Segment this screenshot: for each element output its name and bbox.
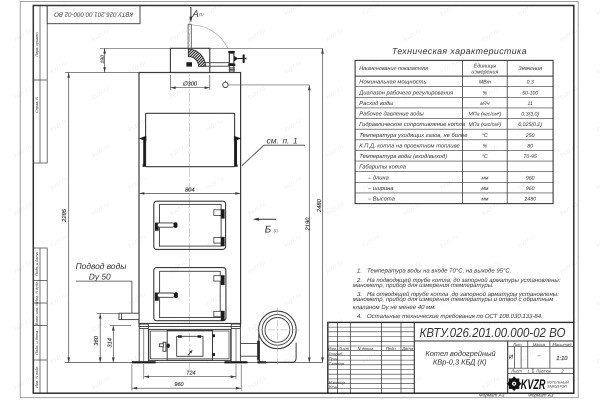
svg-text:мм: мм: [481, 186, 489, 192]
svg-text:– ширина: – ширина: [367, 186, 394, 192]
svg-text:Б: Б: [265, 225, 272, 236]
svg-text:Лит.: Лит.: [512, 342, 523, 347]
svg-text:Расход воды: Расход воды: [359, 100, 394, 107]
svg-text:см. п. 1: см. п. 1: [267, 136, 298, 146]
svg-text:KVZR: KVZR: [521, 376, 546, 392]
svg-text:Перв. примен.: Перв. примен.: [35, 31, 39, 56]
svg-text:МПа (кгс/см²): МПа (кгс/см²): [469, 122, 502, 128]
svg-text:Температура воды (вход/выход): Температура воды (вход/выход): [359, 153, 447, 160]
svg-text:Гидравлическое сопротивление к: Гидравлическое сопротивление котла: [359, 121, 465, 128]
svg-text:– Высота: – Высота: [367, 197, 395, 203]
svg-text:2480: 2480: [316, 198, 323, 213]
svg-text:мм: мм: [481, 197, 489, 203]
svg-text:2480: 2480: [523, 197, 536, 203]
svg-text:Инв. N подл.: Инв. N подл.: [35, 365, 39, 387]
svg-text:мм: мм: [481, 175, 489, 181]
svg-text:Dу 50: Dу 50: [89, 272, 111, 282]
svg-text:Наименование показателя: Наименование показателя: [359, 66, 428, 72]
svg-text:Подп.: Подп.: [386, 346, 397, 351]
svg-text:К.П.Д. котла на проектном топл: К.П.Д. котла на проектном топливе: [359, 143, 459, 149]
svg-text:1: 1: [527, 369, 529, 374]
svg-text:190: 190: [100, 55, 106, 64]
svg-text:960: 960: [526, 186, 535, 192]
svg-text:724: 724: [186, 370, 195, 376]
svg-text:А: А: [191, 9, 199, 20]
svg-text:2190: 2190: [305, 217, 312, 232]
svg-text:50-100: 50-100: [522, 90, 538, 96]
svg-text:МПа (кгс/см²): МПа (кгс/см²): [469, 112, 502, 118]
svg-text:КВр-0,3 КБД (К): КВр-0,3 КБД (К): [433, 358, 487, 367]
svg-text:°С: °С: [482, 154, 488, 160]
svg-text:%: %: [483, 90, 488, 96]
svg-text:0,3: 0,3: [527, 80, 534, 86]
svg-text:2285: 2285: [61, 208, 68, 223]
svg-text:Температура уходящих газов, не: Температура уходящих газов, не более: [359, 132, 467, 139]
svg-text:Лист: Лист: [510, 369, 522, 374]
svg-text:1:10: 1:10: [556, 355, 568, 362]
svg-text:ЗАВОД РЭП: ЗАВОД РЭП: [547, 385, 567, 389]
svg-text:Подп. и дата: Подп. и дата: [35, 252, 39, 276]
svg-text:Дата: Дата: [401, 346, 414, 351]
svg-text:– длина: – длина: [367, 174, 389, 181]
svg-text:0,025(0,2): 0,025(0,2): [518, 122, 542, 128]
svg-text:Котел водогрейный: Котел водогрейный: [425, 349, 495, 358]
svg-text:–: –: [536, 354, 541, 360]
svg-text:Номинальная мощность: Номинальная мощность: [359, 80, 426, 86]
svg-text:Габариты котла: Габариты котла: [359, 164, 406, 171]
svg-text:манометр, прибор для измерения: манометр, прибор для измерения температу…: [353, 296, 554, 303]
svg-text:Масштаб: Масштаб: [552, 342, 572, 347]
svg-text:манометр, прибор для измерения: манометр, прибор для измерения температу…: [353, 282, 494, 289]
svg-text:70-95: 70-95: [524, 154, 537, 160]
svg-text:%: %: [483, 143, 488, 149]
svg-text:80: 80: [527, 143, 533, 149]
svg-text:250: 250: [525, 133, 535, 139]
svg-text:Подп. и дата: Подп. и дата: [35, 331, 39, 355]
svg-text:314: 314: [107, 338, 114, 348]
svg-text:0,3(3,0): 0,3(3,0): [521, 112, 539, 118]
svg-text:МВт: МВт: [479, 80, 492, 86]
svg-text:(1): (1): [199, 13, 203, 17]
svg-text:Диапазон рабочего регулировани: Диапазон рабочего регулирования: [358, 89, 453, 96]
svg-text:Формат А3: Формат А3: [528, 393, 554, 398]
svg-text:клапаном Dу не менее 40 мм.: клапаном Dу не менее 40 мм.: [353, 304, 436, 311]
svg-text:Значения: Значения: [518, 66, 542, 72]
svg-text:Листов: Листов: [535, 369, 552, 374]
svg-text:960: 960: [174, 382, 184, 388]
svg-text:(1): (1): [274, 229, 278, 233]
svg-text:КВТУ.026.201.00.000-02 ВО: КВТУ.026.201.00.000-02 ВО: [54, 11, 133, 18]
svg-text:Справ. N: Справ. N: [35, 97, 39, 113]
svg-text:Масса: Масса: [533, 342, 546, 347]
svg-text:КВТУ.026.201.00.000-02 ВО: КВТУ.026.201.00.000-02 ВО: [420, 325, 566, 340]
svg-text:4. Остальные технические тре: 4. Остальные технические требования по О…: [357, 313, 543, 320]
svg-text:Утв.: Утв.: [329, 385, 338, 390]
svg-text:960: 960: [526, 175, 535, 181]
svg-text:измерения: измерения: [471, 69, 498, 75]
svg-text:Формат А3: Формат А3: [479, 393, 505, 398]
svg-text:Инв. N дубл.: Инв. N дубл.: [35, 281, 39, 303]
svg-text:Рабочее давление воды: Рабочее давление воды: [359, 111, 424, 118]
svg-text:1. Температура воды на входе: 1. Температура воды на входе 70°С, на вы…: [357, 268, 511, 275]
svg-text:Изм.: Изм.: [328, 346, 337, 351]
svg-text:Взам. инв. N: Взам. инв. N: [35, 303, 39, 325]
svg-text:N докум.: N докум.: [358, 346, 375, 351]
svg-text:804: 804: [185, 187, 195, 194]
svg-text:м³/ч: м³/ч: [480, 101, 490, 107]
svg-text:Техническая характеристика: Техническая характеристика: [392, 46, 527, 56]
svg-text:11: 11: [528, 101, 533, 107]
svg-text:°С: °С: [482, 133, 488, 139]
svg-text:∅300: ∅300: [182, 81, 197, 88]
svg-text:360: 360: [93, 335, 100, 345]
svg-text:Лист: Лист: [338, 346, 350, 351]
svg-text:И: И: [509, 355, 513, 361]
svg-text:Подвод воды: Подвод воды: [76, 261, 127, 271]
svg-text:Т.контр.: Т.контр.: [329, 361, 346, 366]
